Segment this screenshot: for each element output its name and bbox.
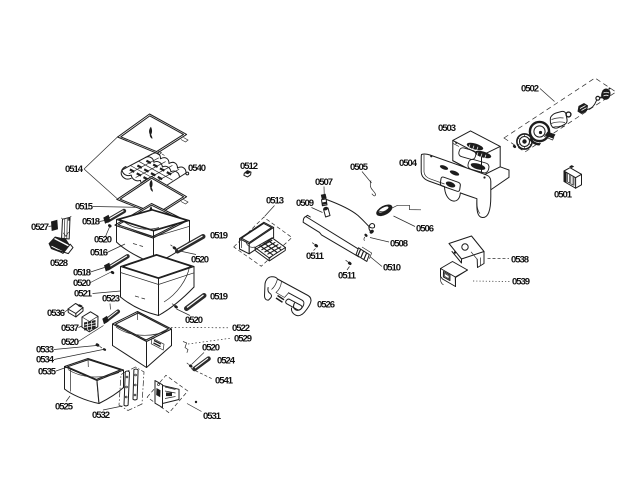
svg-text:0527: 0527 bbox=[31, 222, 49, 233]
svg-text:0539: 0539 bbox=[512, 277, 530, 288]
svg-text:0541: 0541 bbox=[215, 376, 234, 387]
svg-text:0509: 0509 bbox=[296, 198, 314, 209]
svg-text:0515: 0515 bbox=[75, 202, 94, 213]
svg-text:0519: 0519 bbox=[210, 231, 228, 242]
svg-text:0529: 0529 bbox=[234, 334, 252, 345]
svg-text:0531: 0531 bbox=[203, 411, 222, 422]
svg-text:0503: 0503 bbox=[438, 123, 456, 134]
svg-text:0523: 0523 bbox=[102, 294, 120, 305]
svg-text:0502: 0502 bbox=[521, 84, 539, 95]
svg-text:0520: 0520 bbox=[73, 278, 91, 289]
svg-text:0508: 0508 bbox=[390, 239, 408, 250]
svg-text:0540: 0540 bbox=[188, 163, 206, 174]
svg-text:0520: 0520 bbox=[61, 337, 79, 348]
svg-text:0520: 0520 bbox=[94, 235, 112, 246]
svg-text:0505: 0505 bbox=[350, 162, 369, 173]
svg-text:0512: 0512 bbox=[240, 161, 258, 172]
svg-text:0532: 0532 bbox=[92, 410, 110, 421]
svg-text:0535: 0535 bbox=[38, 367, 57, 378]
svg-text:0534: 0534 bbox=[36, 355, 55, 366]
svg-text:0504: 0504 bbox=[399, 158, 418, 169]
svg-text:0516: 0516 bbox=[90, 248, 108, 259]
svg-text:0526: 0526 bbox=[317, 300, 335, 311]
svg-text:0520: 0520 bbox=[191, 255, 209, 266]
svg-text:0506: 0506 bbox=[416, 224, 434, 235]
svg-text:0514: 0514 bbox=[65, 164, 84, 175]
svg-text:0501: 0501 bbox=[554, 190, 573, 201]
svg-text:0536: 0536 bbox=[47, 308, 65, 319]
svg-text:0524: 0524 bbox=[217, 356, 236, 367]
svg-text:0521: 0521 bbox=[74, 289, 93, 300]
svg-text:0511: 0511 bbox=[338, 271, 357, 282]
svg-text:0518: 0518 bbox=[73, 268, 91, 279]
svg-text:0510: 0510 bbox=[383, 263, 401, 274]
svg-text:0518: 0518 bbox=[82, 217, 100, 228]
svg-text:0513: 0513 bbox=[266, 196, 284, 207]
svg-text:0507: 0507 bbox=[315, 177, 333, 188]
svg-text:0520: 0520 bbox=[185, 315, 203, 326]
svg-text:0520: 0520 bbox=[202, 343, 220, 354]
svg-text:0537: 0537 bbox=[61, 323, 79, 334]
svg-text:0525: 0525 bbox=[55, 402, 74, 413]
svg-text:0522: 0522 bbox=[232, 323, 250, 334]
svg-text:0511: 0511 bbox=[306, 251, 325, 262]
svg-text:0528: 0528 bbox=[50, 258, 68, 269]
svg-text:0519: 0519 bbox=[210, 292, 228, 303]
svg-text:0538: 0538 bbox=[511, 255, 529, 266]
